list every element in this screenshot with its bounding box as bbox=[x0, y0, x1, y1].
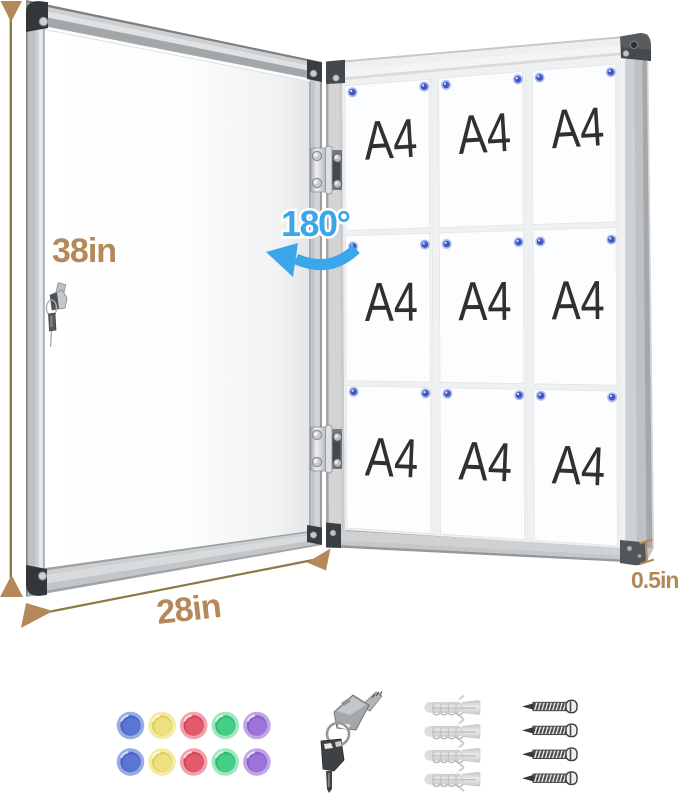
svg-text:180°: 180° bbox=[281, 203, 350, 244]
svg-text:A4: A4 bbox=[551, 269, 605, 332]
svg-text:A4: A4 bbox=[549, 95, 606, 160]
svg-text:28in: 28in bbox=[155, 587, 223, 632]
svg-text:A4: A4 bbox=[364, 425, 420, 489]
svg-text:A4: A4 bbox=[364, 271, 418, 334]
svg-text:A4: A4 bbox=[551, 433, 607, 497]
svg-text:A4: A4 bbox=[458, 270, 512, 333]
svg-text:0.5in: 0.5in bbox=[631, 567, 678, 593]
svg-text:38in: 38in bbox=[52, 232, 116, 270]
svg-text:A4: A4 bbox=[456, 101, 513, 166]
svg-text:A4: A4 bbox=[362, 107, 419, 172]
svg-text:A4: A4 bbox=[458, 429, 514, 493]
